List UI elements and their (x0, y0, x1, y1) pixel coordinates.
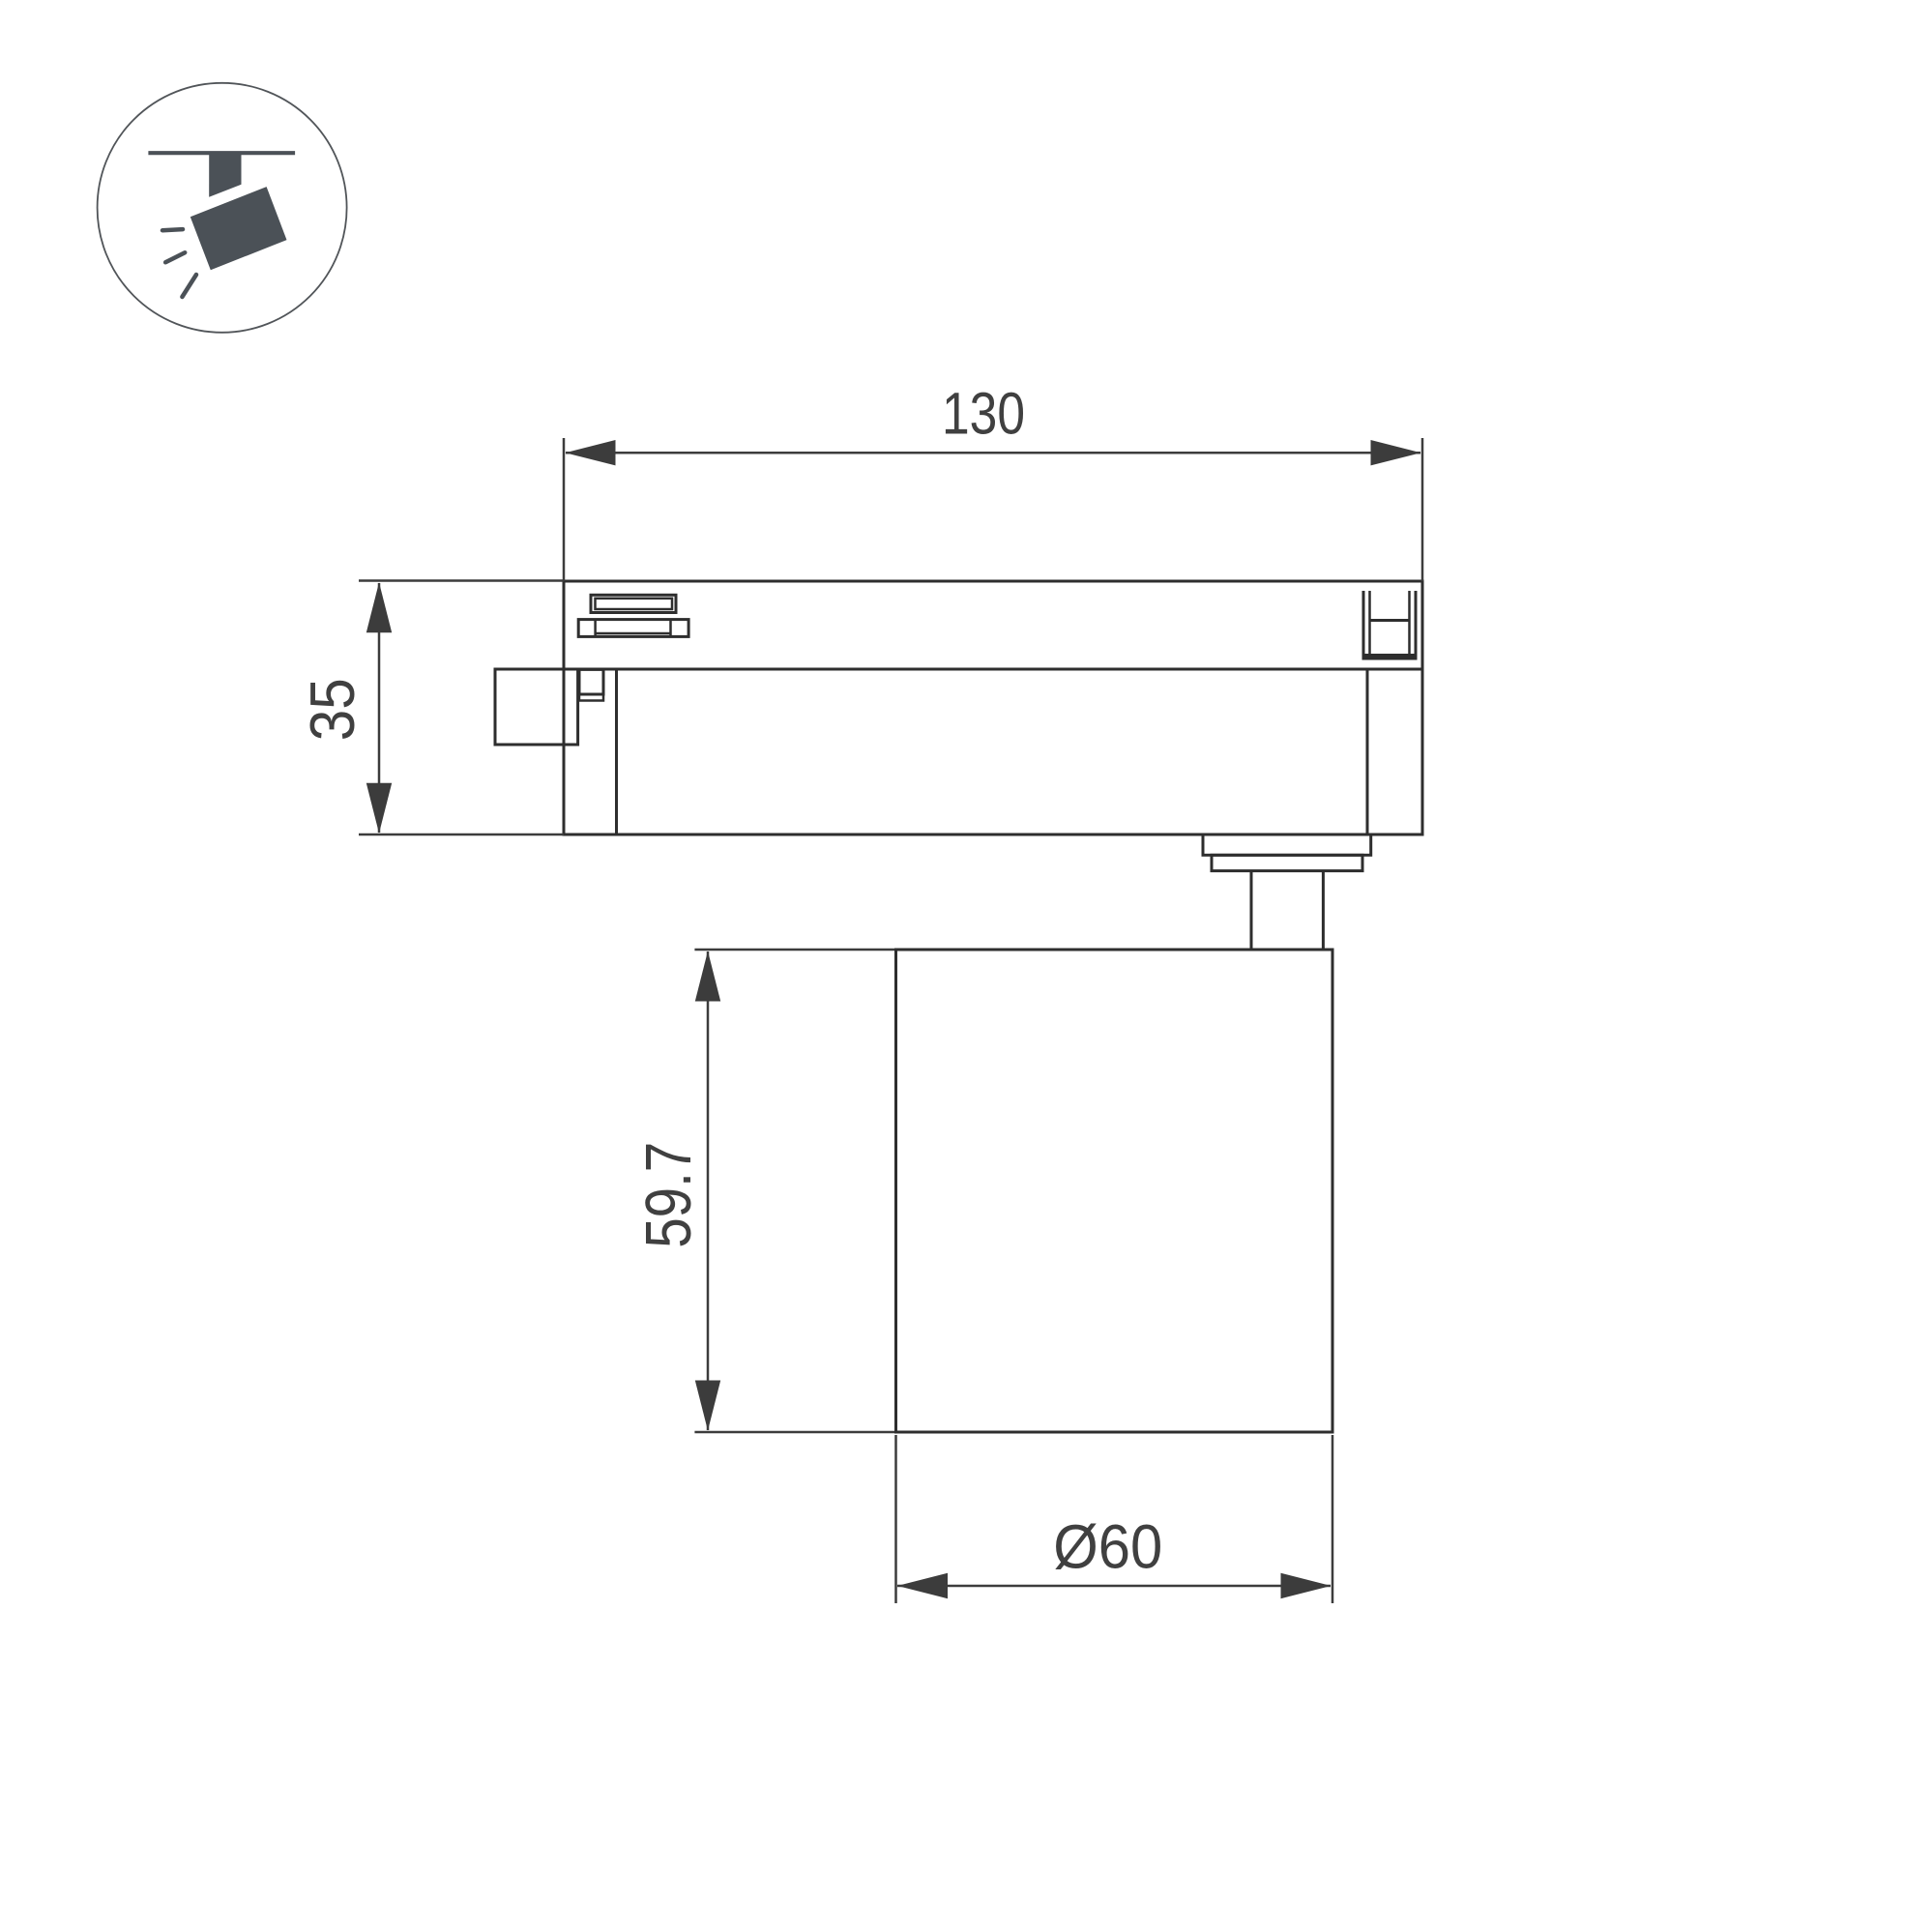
svg-text:59.7: 59.7 (632, 1142, 705, 1248)
svg-text:130: 130 (942, 381, 1025, 447)
svg-text:Ø60: Ø60 (1053, 1512, 1162, 1582)
svg-text:35: 35 (297, 678, 367, 741)
